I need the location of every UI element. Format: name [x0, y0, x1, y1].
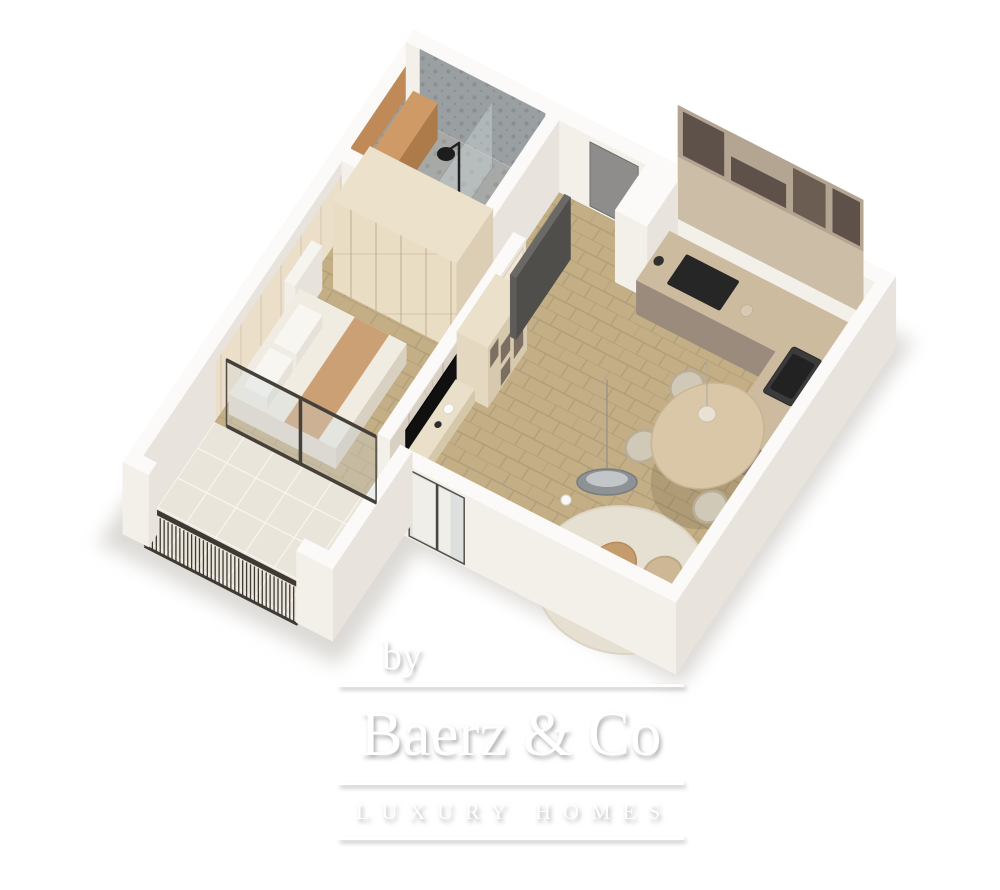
watermark-divider: [338, 837, 684, 840]
watermark-brand-logo: Baerz & Co: [338, 687, 684, 782]
watermark: by Baerz & Co LUXURY HOMES: [338, 634, 684, 840]
watermark-tagline: LUXURY HOMES: [344, 799, 684, 825]
watermark-divider: [338, 782, 684, 785]
sliding-door-mullion: [299, 397, 303, 465]
shower-head: [437, 147, 455, 161]
balcony-column-right-side: [333, 557, 341, 641]
floor-ornament: [561, 495, 571, 505]
balcony-parapet-left-side: [149, 463, 157, 547]
floor-plan-image: by Baerz & Co LUXURY HOMES: [0, 0, 1000, 890]
hall-sliding-panel-front: [510, 275, 516, 340]
balcony-parapet-left-front: [123, 462, 149, 547]
watermark-by: by: [338, 634, 684, 678]
pendant-sphere: [698, 406, 716, 422]
drum-lamp-inner: [586, 471, 628, 487]
door-mullion: [436, 484, 439, 551]
